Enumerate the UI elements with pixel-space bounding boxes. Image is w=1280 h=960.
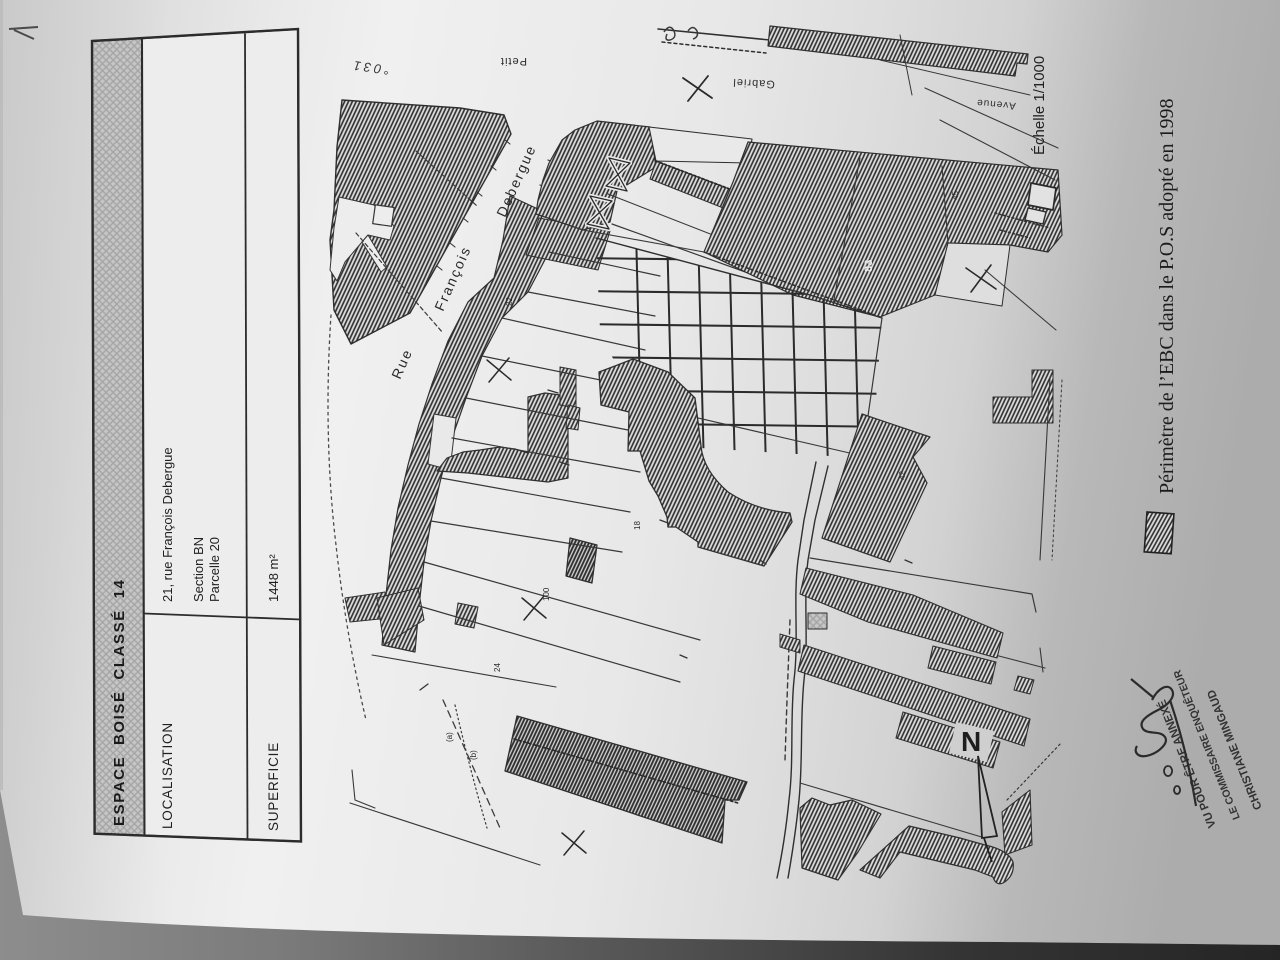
svg-text:ESPACE BOISÉ CLASSÉ 14: ESPACE BOISÉ CLASSÉ 14 — [111, 579, 128, 826]
svg-text:100: 100 — [542, 587, 551, 601]
svg-text:22: 22 — [505, 297, 514, 306]
svg-text:LOCALISATION: LOCALISATION — [160, 722, 175, 829]
svg-text:(b): (b) — [469, 750, 478, 760]
svg-text:Périmètre de l’EBC dans le P.O: Périmètre de l’EBC dans le P.O.S adopté … — [1156, 99, 1178, 495]
svg-text:42: 42 — [898, 471, 907, 480]
svg-text:(a): (a) — [445, 732, 454, 742]
svg-text:21, rue François Debergue: 21, rue François Debergue — [160, 447, 175, 602]
svg-text:1448 m²: 1448 m² — [266, 554, 281, 602]
svg-text:83: 83 — [863, 260, 875, 272]
svg-text:Échelle 1/1000: Échelle 1/1000 — [1031, 56, 1048, 155]
svg-text:SUPERFICIE: SUPERFICIE — [266, 742, 281, 831]
svg-text:18: 18 — [633, 521, 642, 530]
svg-text:N: N — [961, 726, 981, 757]
svg-text:Section BN: Section BN — [191, 537, 206, 602]
svg-text:45: 45 — [951, 191, 960, 200]
svg-text:24: 24 — [493, 663, 502, 672]
svg-text:Petit: Petit — [500, 55, 527, 67]
svg-text:Gabriel: Gabriel — [732, 76, 775, 90]
svg-text:Parcelle 20: Parcelle 20 — [207, 537, 222, 602]
